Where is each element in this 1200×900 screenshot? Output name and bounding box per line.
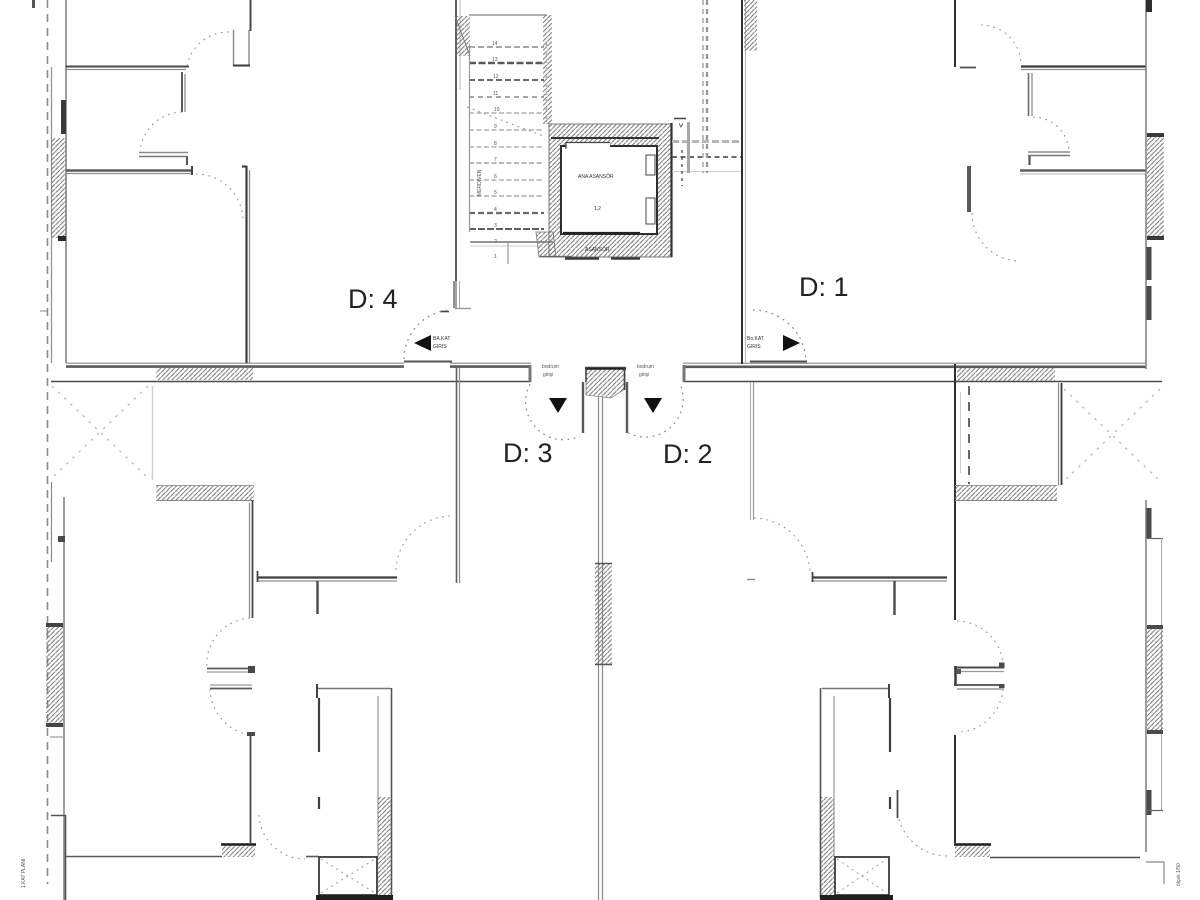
svg-text:ölçek 1/50: ölçek 1/50 [1176,863,1182,886]
svg-text:10: 10 [494,107,500,113]
svg-text:11: 11 [493,91,498,97]
svg-text:girişi: girişi [543,372,553,378]
svg-text:GIRIS: GIRIS [747,344,761,350]
svg-text:D: 4: D: 4 [348,284,398,314]
svg-text:GIRIS: GIRIS [433,344,447,350]
svg-text:1.KAT PLANI: 1.KAT PLANI [21,859,27,888]
svg-text:D: 2: D: 2 [663,439,713,469]
svg-text:Bo.KAT: Bo.KAT [747,336,764,342]
svg-text:5: 5 [494,190,497,196]
svg-text:ASANSÖR: ASANSÖR [585,246,610,253]
svg-text:3: 3 [494,223,497,229]
svg-text:bodrum: bodrum [637,364,654,370]
svg-text:girişi: girişi [639,372,649,378]
svg-text:D: 1: D: 1 [799,272,849,302]
svg-text:12: 12 [493,74,499,80]
svg-text:1,2: 1,2 [594,206,601,212]
svg-text:14: 14 [492,41,498,47]
svg-text:4: 4 [494,207,497,213]
svg-text:8: 8 [494,141,497,147]
svg-text:7: 7 [494,157,497,163]
svg-text:ANA ASANSÖR: ANA ASANSÖR [578,173,614,180]
svg-text:BA.KAT: BA.KAT [433,336,450,342]
svg-text:9: 9 [494,124,497,130]
svg-text:13: 13 [492,57,498,63]
svg-text:1: 1 [494,254,497,260]
svg-text:MERDIVEN: MERDIVEN [477,169,483,196]
svg-text:D: 3: D: 3 [503,438,553,468]
svg-text:6: 6 [494,174,497,180]
svg-text:bodrum: bodrum [542,364,559,370]
